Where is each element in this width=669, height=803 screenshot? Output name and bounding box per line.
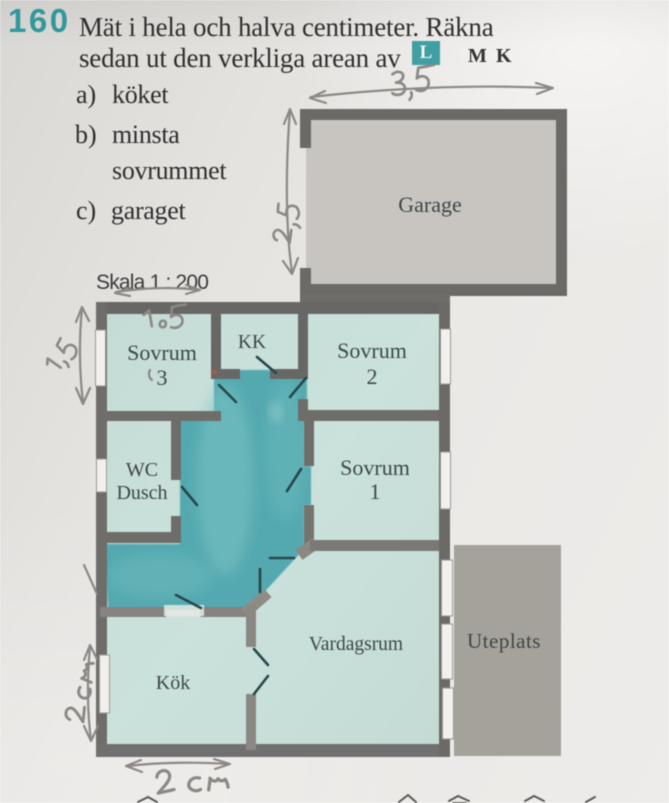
- svg-text:1: 1: [370, 479, 381, 504]
- svg-text:3: 3: [157, 365, 168, 390]
- svg-text:2: 2: [367, 364, 378, 389]
- svg-text:Kök: Kök: [156, 672, 190, 694]
- svg-text:Sovrum: Sovrum: [127, 340, 197, 365]
- svg-text:Vardagsrum: Vardagsrum: [309, 634, 403, 655]
- svg-text:Dusch: Dusch: [116, 482, 167, 504]
- svg-text:KK: KK: [238, 332, 266, 353]
- svg-text:Uteplats: Uteplats: [467, 629, 541, 653]
- svg-text:Sovrum: Sovrum: [337, 338, 407, 363]
- svg-text:Sovrum: Sovrum: [340, 455, 410, 480]
- svg-text:Garage: Garage: [398, 192, 462, 217]
- svg-text:WC: WC: [126, 459, 158, 481]
